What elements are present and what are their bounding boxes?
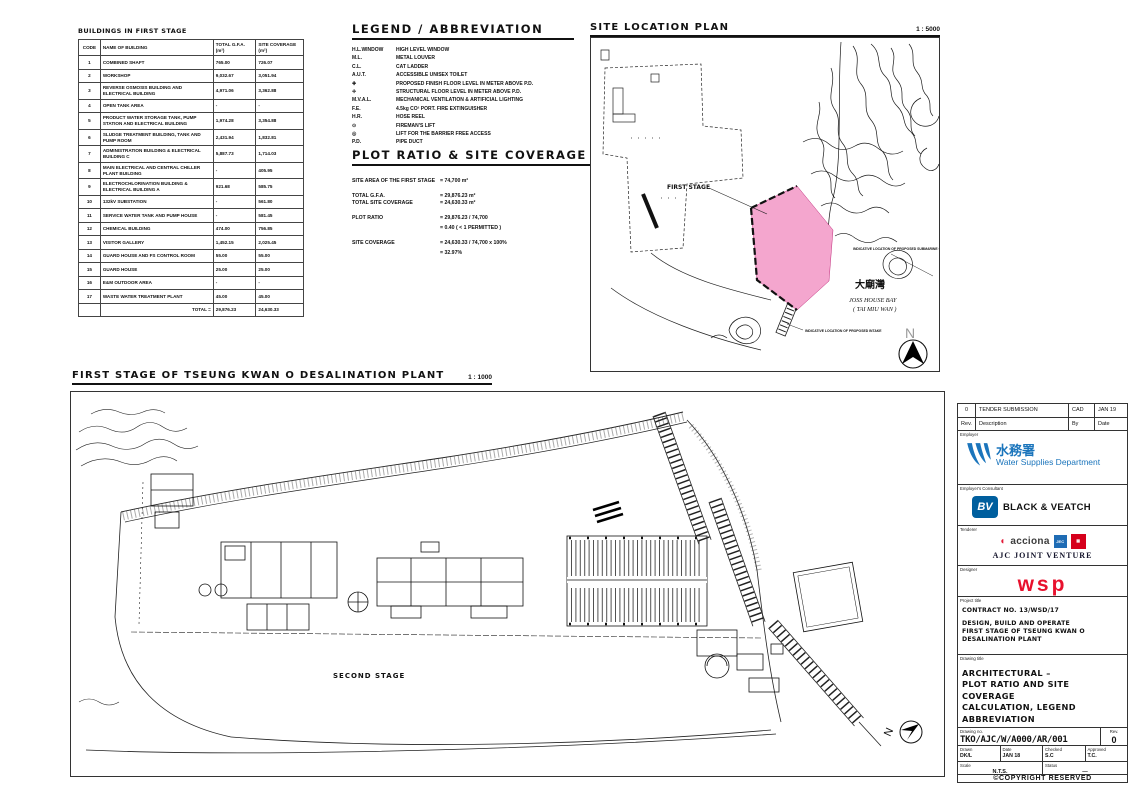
row-gfa: 1,974.28 [214, 113, 257, 128]
acciona-logo-icon: ◖ [999, 536, 1005, 547]
topo-contours [711, 42, 939, 344]
description-label: Description [976, 418, 1069, 431]
legend-item: A.U.T. ACCESSIBLE UNISEX TOILET [352, 71, 574, 79]
row-coverage: 1,714.03 [256, 146, 303, 161]
legend-section: LEGEND / ABBREVIATION H.L.WINDOW HIGH LE… [352, 22, 574, 147]
total-label: TOTAL = [101, 304, 214, 317]
site-plan-map: FIRST STAGE INDICATIVE LOCATION OF PROPO… [591, 38, 939, 370]
buildings-table-header: CODE NAME OF BUILDING TOTAL G.F.A. (m²) … [79, 40, 303, 56]
revision-row-header: Rev. Description By Date [958, 418, 1127, 432]
legend-items: H.L.WINDOW HIGH LEVEL WINDOW M.L. METAL … [352, 46, 574, 147]
scale-label: Scale [958, 762, 1042, 769]
legend-description: 4.5kg CO² PORT. FIRE EXTINGUISHER [396, 105, 487, 113]
legend-item: H.R. HOSE REEL [352, 113, 574, 121]
csc-logo-icon: ▦ [1071, 534, 1086, 549]
row-coverage: 3,354.88 [256, 113, 303, 128]
row-coverage: 3,051.94 [256, 70, 303, 83]
copyright-text: ©COPYRIGHT RESERVED [993, 775, 1092, 782]
wsp-logo-text: wsp [958, 574, 1127, 596]
acciona-logo-text: acciona [1010, 536, 1049, 547]
legend-title: LEGEND / ABBREVIATION [352, 22, 574, 40]
total-gfa: 29,876.23 [214, 304, 257, 317]
bay-label-en: JOSS HOUSE BAY [849, 297, 897, 304]
main-north-label: N [882, 726, 896, 738]
row-code: 16 [79, 277, 101, 290]
table-row: 2 WORKSHOP 9,032.67 3,051.94 [79, 70, 303, 84]
table-row: 9 ELECTROCHLORINATION BUILDING & ELECTRI… [79, 179, 303, 195]
employer-name: Water Supplies Department [996, 457, 1100, 467]
project-title-section: Project title CONTRACT NO. 13/WSD/17 DES… [958, 597, 1127, 655]
row-code: 12 [79, 223, 101, 236]
row-code: 2 [79, 70, 101, 83]
row-building-name: VISITOR GALLERY [101, 236, 214, 249]
table-row: 14 GUARD HOUSE AND FS CONTROL ROOM 55.00… [79, 250, 303, 264]
buildings-table-total-row: TOTAL = 29,876.23 24,630.33 [79, 304, 303, 318]
rev-date: JAN 19 [1095, 404, 1127, 417]
legend-description: HOSE REEL [396, 113, 425, 121]
row-gfa: 474.00 [214, 223, 257, 236]
table-row: 15 GUARD HOUSE 25.00 25.00 [79, 263, 303, 277]
row-code: 17 [79, 290, 101, 303]
legend-item: ✚ PROPOSED FINISH FLOOR LEVEL IN METER A… [352, 80, 574, 88]
site-plan-titlebar: SITE LOCATION PLAN 1 : 5000 [590, 22, 940, 37]
header-gfa: TOTAL G.F.A. (m²) [214, 40, 257, 55]
legend-description: PIPE DUCT [396, 138, 423, 146]
row-gfa: 4,971.06 [214, 83, 257, 98]
row-code: 8 [79, 163, 101, 178]
row-code: 15 [79, 263, 101, 276]
legend-symbol: P.D. [352, 138, 396, 146]
row-gfa: - [214, 209, 257, 222]
north-label: N [905, 325, 915, 341]
plot-ratio-lines: SITE AREA OF THE FIRST STAGE = 74,700 m²… [352, 178, 604, 257]
calc-line: SITE COVERAGE = 24,630.33 / 74,700 x 100… [352, 240, 604, 247]
note-intake: INDICATIVE LOCATION OF PROPOSED INTAKE [805, 329, 882, 333]
row-building-name: PRODUCT WATER STORAGE TANK, PUMP STATION… [101, 113, 214, 128]
legend-symbol: ✛ [352, 88, 396, 96]
legend-symbol: M.L. [352, 54, 396, 62]
row-gfa: - [214, 163, 257, 178]
calc-value: = 29,876.23 / 74,700 [440, 215, 604, 222]
row-building-name: COMBINED SHAFT [101, 56, 214, 69]
total-coverage: 24,630.33 [256, 304, 303, 317]
row-coverage: - [256, 100, 303, 113]
legend-item: P.D. PIPE DUCT [352, 138, 574, 146]
main-plan-drawing: SECOND STAGE N [71, 392, 944, 776]
row-coverage: 585.75 [256, 179, 303, 194]
row-coverage: 1,832.81 [256, 130, 303, 145]
row-gfa: 765.00 [214, 56, 257, 69]
contour-lines [76, 409, 198, 705]
row-building-name: OPEN TANK AREA [101, 100, 214, 113]
table-row: 3 REVERSE OSMOSIS BUILDING AND ELECTRICA… [79, 83, 303, 99]
row-building-name: GUARD HOUSE AND FS CONTROL ROOM [101, 250, 214, 263]
legend-symbol: A.U.T. [352, 71, 396, 79]
tenderer-section: Tenderer ◖ acciona JEC ▦ AJC JOINT VENTU… [958, 526, 1127, 566]
project-title-text: DESIGN, BUILD AND OPERATE FIRST STAGE OF… [958, 614, 1127, 644]
header-name: NAME OF BUILDING [101, 40, 214, 55]
total-empty [79, 304, 101, 317]
table-row: 8 MAIN ELECTRICAL AND CENTRAL CHILLER PL… [79, 163, 303, 179]
bay-label-cjk: 大廟灣 [855, 278, 885, 291]
jec-logo-icon: JEC [1054, 535, 1067, 548]
row-coverage: 55.00 [256, 250, 303, 263]
row-gfa: 2,431.94 [214, 130, 257, 145]
by-label: By [1069, 418, 1095, 431]
row-gfa: 25.00 [214, 263, 257, 276]
main-plan-titlebar: FIRST STAGE OF TSEUNG KWAN O DESALINATIO… [72, 370, 492, 385]
site-location-plan: FIRST STAGE INDICATIVE LOCATION OF PROPO… [590, 37, 940, 372]
row-coverage: 726.07 [256, 56, 303, 69]
first-stage-leader [709, 188, 767, 214]
row-code: 3 [79, 83, 101, 98]
row-gfa: 5,887.73 [214, 146, 257, 161]
legend-description: METAL LOUVER [396, 54, 435, 62]
calc-value: = 74,700 m² [440, 178, 604, 185]
title-block: 0 TENDER SUBMISSION CAD JAN 19 Rev. Desc… [957, 403, 1128, 783]
first-stage-label: FIRST STAGE [667, 184, 710, 191]
rev-by: CAD [1069, 404, 1095, 417]
header-coverage: SITE COVERAGE (m²) [256, 40, 303, 55]
table-row: 4 OPEN TANK AREA - - [79, 100, 303, 114]
row-code: 11 [79, 209, 101, 222]
row-code: 6 [79, 130, 101, 145]
wsd-logo-icon [966, 442, 992, 468]
bv-logo-icon: BV [972, 496, 998, 518]
row-coverage: 405.95 [256, 163, 303, 178]
table-row: 10 132kV SUBSTATION - 561.80 [79, 196, 303, 210]
checked-value: S.C [1043, 753, 1085, 760]
row-gfa: 55.00 [214, 250, 257, 263]
calc-label [352, 250, 440, 257]
calc-line: TOTAL G.F.A. = 29,876.23 m² [352, 193, 604, 200]
row-building-name: E&M OUTDOOR AREA [101, 277, 214, 290]
table-row: 1 COMBINED SHAFT 765.00 726.07 [79, 56, 303, 70]
calc-label [352, 225, 440, 232]
drawing-title-section: Drawing title ARCHITECTURAL – PLOT RATIO… [958, 655, 1127, 728]
tenderer-logos: ◖ acciona JEC ▦ [958, 534, 1127, 549]
table-row: 17 WASTE WATER TREATMENT PLANT 45.00 45.… [79, 290, 303, 304]
legend-item: ⊙ FIREMAN'S LIFT [352, 122, 574, 130]
row-coverage: 581.45 [256, 209, 303, 222]
legend-description: FIREMAN'S LIFT [396, 122, 435, 130]
buildings-table-title: BUILDINGS IN FIRST STAGE [78, 27, 304, 35]
approved-label: Approved [1086, 746, 1128, 753]
row-code: 5 [79, 113, 101, 128]
calc-label: TOTAL SITE COVERAGE [352, 200, 440, 207]
table-row: 6 SLUDGE TREATMENT BUILDING, TANK AND PU… [79, 130, 303, 146]
calc-label: PLOT RATIO [352, 215, 440, 222]
row-code: 1 [79, 56, 101, 69]
legend-item: M.L. METAL LOUVER [352, 54, 574, 62]
calc-value: = 24,630.33 m² [440, 200, 604, 207]
calc-line: TOTAL SITE COVERAGE = 24,630.33 m² [352, 200, 604, 207]
row-code: 9 [79, 179, 101, 194]
calc-line: = 0.40 ( < 1 PERMITTED ) [352, 225, 604, 232]
legend-item: M.V.A.L. MECHANICAL VENTILATION & ARTIFI… [352, 96, 574, 104]
legend-symbol: F.E. [352, 105, 396, 113]
designer-section: Designer wsp [958, 566, 1127, 597]
table-row: 16 E&M OUTDOOR AREA - - [79, 277, 303, 291]
table-row: 13 VISITOR GALLERY 1,452.15 2,025.45 [79, 236, 303, 250]
legend-item: C.L. CAT LADDER [352, 63, 574, 71]
calc-line: = 32.97% [352, 250, 604, 257]
employer-section: Employer 水務署 Water Supplies Department [958, 431, 1127, 485]
status-label: Status [1043, 762, 1127, 769]
legend-item: ◎ LIFT FOR THE BARRIER FREE ACCESS [352, 130, 574, 138]
legend-symbol: ⊙ [352, 122, 396, 130]
north-arrow-icon: N [899, 325, 927, 368]
row-gfa: 1,452.15 [214, 236, 257, 249]
drawing-number-section: Drawing no. TKO/AJC/W/A000/AR/001 Rev. 0 [958, 728, 1127, 747]
row-gfa: 921.68 [214, 179, 257, 194]
main-plan-title: FIRST STAGE OF TSEUNG KWAN O DESALINATIO… [72, 370, 444, 381]
row-building-name: SLUDGE TREATMENT BUILDING, TANK AND PUMP… [101, 130, 214, 145]
date-value: JAN 18 [1001, 753, 1043, 760]
drawing-number: TKO/AJC/W/A000/AR/001 [958, 735, 1100, 745]
plot-ratio-section: PLOT RATIO & SITE COVERAGE CALCULATION: … [352, 148, 604, 257]
signoff-section: DrawnDK/L DateJAN 18 CheckedS.C Approved… [958, 746, 1127, 762]
rev-box-label: Rev. [1101, 728, 1127, 735]
row-building-name: ADMINISTRATION BUILDING & ELECTRICAL BUI… [101, 146, 214, 161]
row-code: 7 [79, 146, 101, 161]
legend-item: ✛ STRUCTURAL FLOOR LEVEL IN METER ABOVE … [352, 88, 574, 96]
header-code: CODE [79, 40, 101, 55]
legend-symbol: C.L. [352, 63, 396, 71]
calc-value: = 29,876.23 m² [440, 193, 604, 200]
legend-symbol: H.L.WINDOW [352, 46, 396, 54]
legend-symbol: H.R. [352, 113, 396, 121]
table-row: 5 PRODUCT WATER STORAGE TANK, PUMP STATI… [79, 113, 303, 129]
row-building-name: SERVICE WATER TANK AND PUMP HOUSE [101, 209, 214, 222]
drawing-no-label: Drawing no. [958, 728, 1100, 735]
reclamation-outline [601, 50, 771, 350]
legend-description: CAT LADDER [396, 63, 428, 71]
main-north-arrow-icon: N [882, 721, 922, 743]
calc-value: = 32.97% [440, 250, 604, 257]
row-code: 13 [79, 236, 101, 249]
rev-label: Rev. [958, 418, 976, 431]
main-plan: SECOND STAGE N [70, 391, 945, 777]
rev-box-value: 0 [1101, 735, 1127, 745]
first-stage-area [751, 186, 833, 310]
legend-description: MECHANICAL VENTILATION & ARTIFICIAL LIGH… [396, 96, 523, 104]
drawing-title-text: ARCHITECTURAL – PLOT RATIO AND SITE COVE… [958, 662, 1127, 726]
legend-symbol: ✚ [352, 80, 396, 88]
plant-buildings [151, 474, 863, 692]
row-coverage: 2,025.45 [256, 236, 303, 249]
rev-number: 0 [958, 404, 976, 417]
legend-description: PROPOSED FINISH FLOOR LEVEL IN METER ABO… [396, 80, 533, 88]
row-gfa: 45.00 [214, 290, 257, 303]
row-code: 14 [79, 250, 101, 263]
buildings-table-section: BUILDINGS IN FIRST STAGE CODE NAME OF BU… [78, 27, 304, 317]
consultant-label: Employer's Consultant [958, 485, 1127, 492]
project-label: Project title [958, 597, 1127, 604]
row-code: 4 [79, 100, 101, 113]
consultant-section: Employer's Consultant BV BLACK & VEATCH [958, 485, 1127, 526]
date-label: Date [1095, 418, 1127, 431]
row-building-name: ELECTROCHLORINATION BUILDING & ELECTRICA… [101, 179, 214, 194]
row-gfa: - [214, 100, 257, 113]
legend-description: HIGH LEVEL WINDOW [396, 46, 449, 54]
table-row: 7 ADMINISTRATION BUILDING & ELECTRICAL B… [79, 146, 303, 162]
drawing-title-label: Drawing title [958, 655, 1127, 662]
employer-label: Employer [958, 431, 1127, 438]
table-row: 11 SERVICE WATER TANK AND PUMP HOUSE - 5… [79, 209, 303, 223]
row-building-name: 132kV SUBSTATION [101, 196, 214, 209]
row-coverage: - [256, 277, 303, 290]
row-coverage: 25.00 [256, 263, 303, 276]
checked-label: Checked [1043, 746, 1085, 753]
site-plan-scale: 1 : 5000 [916, 26, 940, 33]
plot-ratio-title: PLOT RATIO & SITE COVERAGE CALCULATION: [352, 148, 604, 166]
main-plan-scale: 1 : 1000 [468, 374, 492, 381]
row-gfa: - [214, 196, 257, 209]
revision-row-entry: 0 TENDER SUBMISSION CAD JAN 19 [958, 404, 1127, 418]
row-coverage: 45.00 [256, 290, 303, 303]
tenderer-name: AJC JOINT VENTURE [958, 551, 1127, 560]
row-gfa: - [214, 277, 257, 290]
wsd-logo: 水務署 Water Supplies Department [958, 438, 1127, 468]
legend-item: F.E. 4.5kg CO² PORT. FIRE EXTINGUISHER [352, 105, 574, 113]
rev-description: TENDER SUBMISSION [976, 404, 1069, 417]
buildings-table: CODE NAME OF BUILDING TOTAL G.F.A. (m²) … [78, 39, 304, 317]
contract-number: CONTRACT NO. 13/WSD/17 [958, 604, 1127, 614]
bay-label-en2: ( TAI MIU WAN ) [853, 306, 896, 313]
second-stage-label: SECOND STAGE [333, 672, 405, 680]
row-gfa: 9,032.67 [214, 70, 257, 83]
calc-line: SITE AREA OF THE FIRST STAGE = 74,700 m² [352, 178, 604, 185]
row-building-name: WORKSHOP [101, 70, 214, 83]
site-plan-title: SITE LOCATION PLAN [590, 22, 729, 33]
legend-symbol: ◎ [352, 130, 396, 138]
copyright-section: ©COPYRIGHT RESERVED [958, 775, 1127, 782]
calc-value: = 0.40 ( < 1 PERMITTED ) [440, 225, 604, 232]
row-coverage: 3,362.88 [256, 83, 303, 98]
drawn-value: DK/L [958, 753, 1000, 760]
calc-label: SITE COVERAGE [352, 240, 440, 247]
drawn-label: Drawn [958, 746, 1000, 753]
row-building-name: CHEMICAL BUILDING [101, 223, 214, 236]
table-row: 12 CHEMICAL BUILDING 474.00 756.85 [79, 223, 303, 237]
consultant-name: BLACK & VEATCH [1003, 502, 1091, 513]
calc-value: = 24,630.33 / 74,700 x 100% [440, 240, 604, 247]
calc-label: TOTAL G.F.A. [352, 193, 440, 200]
date-label2: Date [1001, 746, 1043, 753]
scale-status-section: ScaleN.T.S. Status— [958, 762, 1127, 775]
row-building-name: MAIN ELECTRICAL AND CENTRAL CHILLER PLAN… [101, 163, 214, 178]
black-veatch-logo: BV BLACK & VEATCH [958, 492, 1127, 518]
buildings-table-body: 1 COMBINED SHAFT 765.00 726.07 2 WORKSHO… [79, 56, 303, 303]
row-building-name: REVERSE OSMOSIS BUILDING AND ELECTRICAL … [101, 83, 214, 98]
row-building-name: WASTE WATER TREATMENT PLANT [101, 290, 214, 303]
approved-value: T.C. [1086, 753, 1128, 760]
legend-description: LIFT FOR THE BARRIER FREE ACCESS [396, 130, 491, 138]
tenderer-label: Tenderer [958, 526, 1127, 533]
legend-item: H.L.WINDOW HIGH LEVEL WINDOW [352, 46, 574, 54]
employer-name-cjk: 水務署 [996, 444, 1100, 457]
row-coverage: 756.85 [256, 223, 303, 236]
row-building-name: GUARD HOUSE [101, 263, 214, 276]
designer-label: Designer [958, 566, 1127, 573]
legend-description: STRUCTURAL FLOOR LEVEL IN METER ABOVE P.… [396, 88, 521, 96]
calc-line: PLOT RATIO = 29,876.23 / 74,700 [352, 215, 604, 222]
legend-description: ACCESSIBLE UNISEX TOILET [396, 71, 467, 79]
legend-symbol: M.V.A.L. [352, 96, 396, 104]
calc-label: SITE AREA OF THE FIRST STAGE [352, 178, 440, 185]
row-code: 10 [79, 196, 101, 209]
note-outfall: INDICATIVE LOCATION OF PROPOSED SUBMARIN… [853, 247, 939, 251]
row-coverage: 561.80 [256, 196, 303, 209]
